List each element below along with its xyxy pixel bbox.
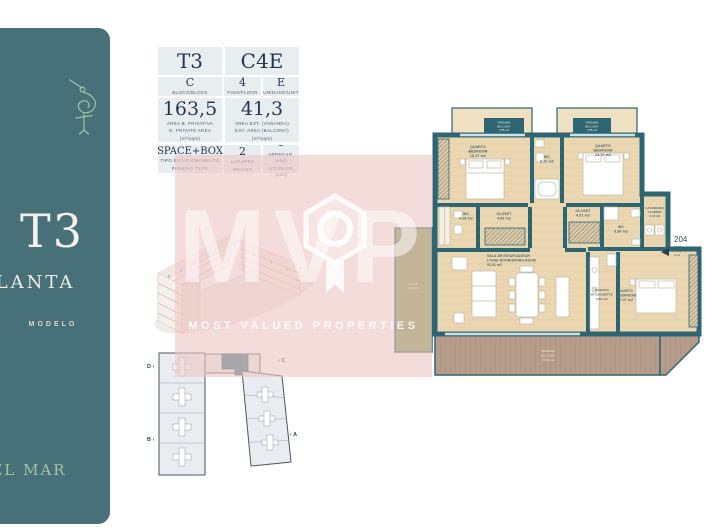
sidebar-panel: T3 PLANTA MODELO DEL MAR [0, 28, 110, 524]
unit-note-line-1: AP TO [674, 245, 682, 249]
room-label-living-en: LIVING ROOM/DINING ROOM [487, 259, 536, 263]
ext-area-value: 41,3 [241, 98, 283, 120]
private-area-label-en: G. PRIVATE AREA [169, 128, 211, 134]
room-label-laundry-area: 3.44 m2 [650, 214, 661, 218]
stork-icon [60, 74, 108, 136]
private-area-unit: (m²/sqm) [180, 136, 200, 142]
block-value: C [186, 76, 194, 89]
room-label-bedroom-2-area: 14.19 m2 [595, 153, 611, 157]
unit-note-line-2: PA TO [674, 249, 681, 253]
room-label-wc-2-pt: WC [463, 212, 469, 216]
room-label-bedroom-1-area: 16.17 m2 [470, 154, 486, 158]
cell-parking: SPACE+BOX TIPO ESTACIONAMENTO PARKING TY… [158, 145, 222, 173]
room-label-bedroom-2-pt: QUARTO [595, 144, 611, 148]
sidebar-modelo-label: MODELO [29, 321, 78, 328]
garden-area [395, 228, 432, 352]
cell-type: T3 [158, 47, 222, 75]
room-label-bedroom-3-en: BEDROOM [618, 294, 636, 298]
block-label: BLOCO/BLOCK [172, 90, 208, 96]
cell-code: C4E [225, 47, 299, 75]
site-plan: D › ‹ C B › ‹ A [145, 345, 315, 485]
balcony-1-label-area: 1.85 m2 [499, 128, 510, 132]
cell-private-area: 163,5 ÁREA B. PRIVATIVA G. PRIVATE AREA … [158, 98, 222, 142]
garden-label-en: GARDEN [407, 286, 419, 290]
cell-spaces: 2 LUGARES SPACES [224, 145, 261, 173]
room-label-closet-1-area: 4.69 m2 [497, 217, 511, 221]
cell-floor: 4 PISO/FLOOR [224, 77, 261, 96]
room-label-laundry-en: LAUNDRY [648, 210, 662, 214]
room-label-wc-3-pt: WC [618, 225, 624, 229]
storage-label-en: STORAGE (unit) [263, 166, 299, 178]
ext-area-label-en: EXT. AREA (BALCONY) [235, 128, 289, 134]
balcony-north-1 [452, 108, 532, 135]
storage-label-pt: ARRECAD. (und) [263, 152, 299, 164]
sidebar-planta-label: PLANTA [0, 272, 75, 293]
cell-storage: – ARRECAD. (und) STORAGE (unit) [263, 145, 299, 173]
room-label-living-area: 33.91 m2 [487, 263, 502, 267]
block-marker-a: ‹ A [290, 432, 297, 438]
room-label-wc-1-pt: WC [544, 155, 550, 159]
room-label-living-pt: SALA DE ESTAR/JANTAR [487, 254, 530, 258]
main-balcony-label-en: BALCONY [541, 354, 555, 358]
room-label-bedroom-2-en: BEDROOM [593, 149, 612, 153]
main-balcony-deck [435, 334, 699, 375]
room-label-kitchen-area: 8.60 m2 [596, 297, 608, 301]
code-value: C4E [241, 49, 284, 73]
spaces-label-en: SPACES [233, 167, 253, 173]
parking-value: SPACE+BOX [157, 146, 223, 157]
room-label-bedroom-3-pt: QUARTO [618, 289, 633, 293]
balcony-2-label-area: 1.85 m2 [587, 128, 598, 132]
unit-label: UNIDADE/UNIT [263, 90, 299, 96]
sidebar-type-title: T3 [20, 204, 84, 258]
cell-unit: E UNIDADE/UNIT [263, 77, 299, 96]
spaces-label-pt: LUGARES [231, 159, 255, 165]
room-label-bedroom-3-area: 17.07 m2 [618, 298, 633, 302]
parking-label-pt: TIPO ESTACIONAMENTO [160, 158, 219, 164]
private-area-label-pt: ÁREA B. PRIVATIVA [167, 121, 213, 127]
sidebar-brand: DEL MAR [0, 461, 67, 479]
room-label-kitchen-pt: COZINHA [595, 288, 609, 292]
storage-value: – [279, 140, 284, 151]
unit-number: 204 [674, 235, 688, 244]
floor-label: PISO/FLOOR [227, 90, 258, 96]
block-marker-c: ‹ C [278, 358, 285, 364]
brochure-page: T3 PLANTA MODELO DEL MAR T3 C4E C BLOCO/… [0, 0, 705, 528]
room-label-wc-1-area: 5.10 m2 [540, 160, 554, 164]
main-balcony-label-area: 37.60 m2 [542, 358, 555, 362]
block-marker-d: D › [147, 364, 155, 370]
parking-label-en: PARKING TYPE [172, 166, 208, 172]
room-label-closet-2-pt: CLOSET [576, 209, 592, 213]
building-3d-render [148, 205, 323, 335]
unit-note-line-3: (m²/s [674, 253, 681, 257]
apartment-floorplan: QUARTO BEDROOM 16.17 m2 WC 5.10 m2 QUART… [390, 95, 705, 385]
cell-ext-area: 41,3 ÁREA EXT. (VARANDA) EXT. AREA (BALC… [225, 98, 299, 142]
site-plan-left-wing [159, 353, 205, 475]
block-marker-b: B › [147, 437, 155, 443]
main-balcony-label-pt: VARANDA [541, 349, 555, 353]
room-label-bedroom-1-en: BEDROOM [468, 150, 487, 154]
room-label-wc-3-area: 3.39 m2 [614, 230, 628, 234]
room-label-bedroom-1-pt: QUARTO [470, 145, 486, 149]
type-value: T3 [177, 49, 203, 73]
site-plan-right-wing [242, 371, 291, 466]
room-label-closet-2-area: 4.51 m2 [576, 214, 590, 218]
room-label-kitchen-en: KITCHENETTE [591, 293, 613, 297]
private-area-value: 163,5 [163, 98, 217, 120]
room-label-closet-1-pt: CLOSET [497, 212, 513, 216]
unit-value: E [277, 76, 285, 89]
ext-area-label-pt: ÁREA EXT. (VARANDA) [235, 121, 289, 127]
floor-value: 4 [239, 76, 246, 89]
ext-area-unit: (m²/sqm) [252, 136, 272, 142]
room-label-wc-2-area: 4.18 m2 [459, 217, 473, 221]
room-label-laundry-pt: LAVANDARIA [646, 206, 665, 210]
spaces-value: 2 [239, 145, 246, 158]
cell-block: C BLOCO/BLOCK [158, 77, 222, 96]
